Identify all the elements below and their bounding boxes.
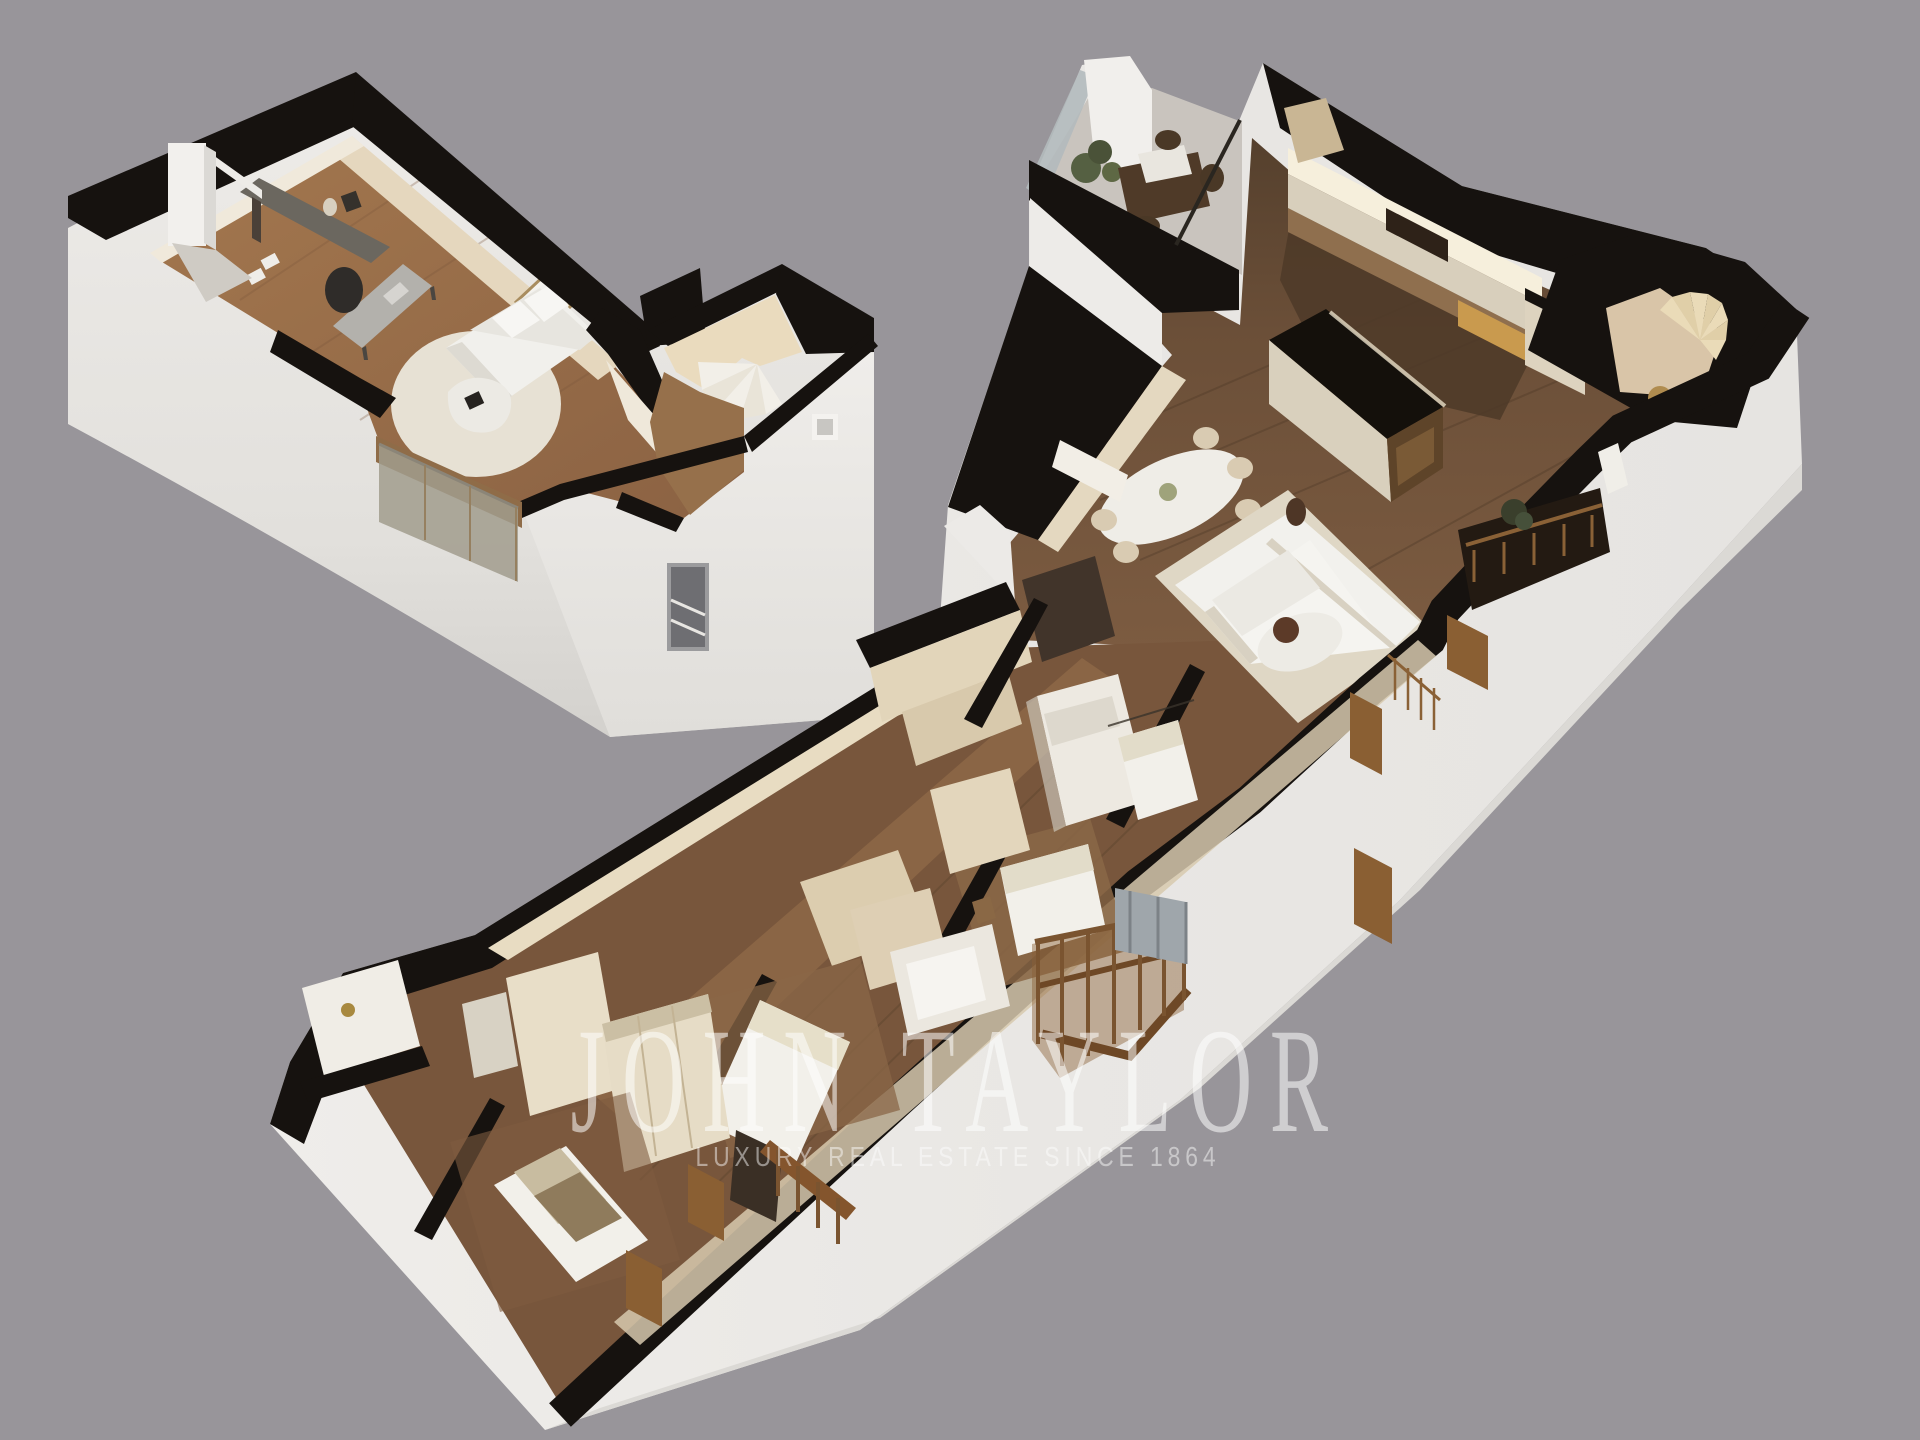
svg-text:JOHN TAYLOR: JOHN TAYLOR (571, 998, 1346, 1164)
svg-text:LUXURY REAL ESTATE SINCE 1864: LUXURY REAL ESTATE SINCE 1864 (696, 1141, 1221, 1172)
